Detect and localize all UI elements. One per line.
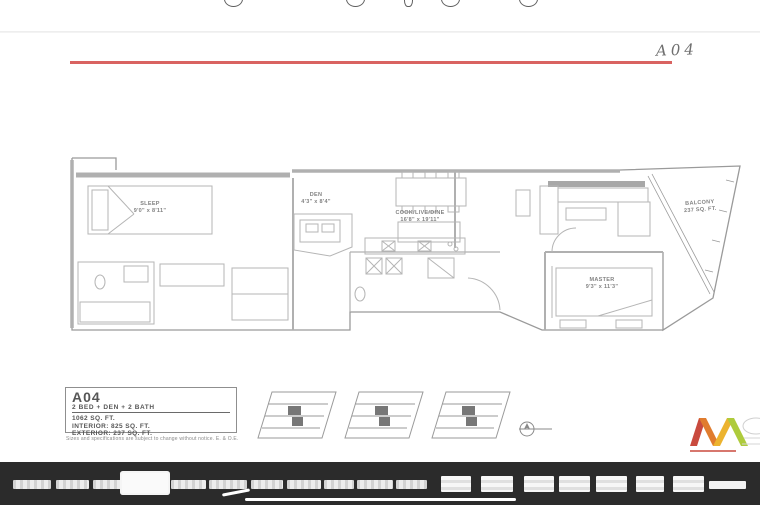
disclaimer-text: Sizes and specifications are subject to … xyxy=(66,436,296,442)
toolbar-icon[interactable] xyxy=(346,0,365,7)
builder-logo-icon xyxy=(690,418,760,452)
room-label-master: MASTER xyxy=(589,277,614,283)
thumbnail[interactable] xyxy=(524,476,554,492)
thumbnail[interactable] xyxy=(122,473,168,493)
info-box: A04 2 BED + DEN + 2 BATH 1062 SQ. FT. IN… xyxy=(65,387,237,433)
compass-icon xyxy=(519,422,552,436)
room-dims-den: 4'3" x 8'4" xyxy=(301,199,331,205)
keyplan xyxy=(258,392,336,438)
thumbnail[interactable] xyxy=(287,480,321,489)
toolbar-icon[interactable] xyxy=(404,0,413,7)
unit-interior: INTERIOR: 825 SQ. FT. xyxy=(72,423,230,431)
unit-area: 1062 SQ. FT. xyxy=(72,415,230,423)
thumbnail[interactable] xyxy=(559,476,590,492)
toolbar-icon[interactable] xyxy=(224,0,243,7)
unit-type: 2 BED + DEN + 2 BATH xyxy=(72,404,230,413)
thumbnail[interactable] xyxy=(596,476,627,492)
thumbnail[interactable] xyxy=(13,480,51,489)
thumbnail-scrollbar[interactable] xyxy=(245,498,516,501)
thumbnail[interactable] xyxy=(709,481,746,489)
thumbnail[interactable] xyxy=(93,480,121,489)
room-dims-master: 9'3" x 11'3" xyxy=(586,284,619,290)
thumbnail[interactable] xyxy=(56,480,89,489)
room-dims-sleep: 9'0" x 8'11" xyxy=(134,208,167,214)
toolbar-icon[interactable] xyxy=(519,0,538,7)
room-dims-balcony: 237 SQ. FT. xyxy=(684,206,717,214)
keyplan xyxy=(432,392,510,438)
thumbnail[interactable] xyxy=(324,480,354,489)
room-label-cook: COOK/LIVE/DINE xyxy=(395,210,444,216)
cursor-mark xyxy=(222,488,250,496)
thumbnail[interactable] xyxy=(441,476,471,492)
unit-code: A04 xyxy=(72,390,230,404)
thumbnail[interactable] xyxy=(481,476,513,492)
photo-viewer[interactable]: A04 xyxy=(0,33,760,462)
room-label-den: DEN xyxy=(310,192,323,198)
thumbnail[interactable] xyxy=(357,480,393,489)
thumbnail[interactable] xyxy=(673,476,704,492)
thumbnail[interactable] xyxy=(251,480,283,489)
thumbnail[interactable] xyxy=(636,476,664,492)
thumbnail[interactable] xyxy=(396,480,427,489)
toolbar-icon[interactable] xyxy=(441,0,460,7)
thumbnail-strip xyxy=(0,462,760,505)
gallery-page: A04 xyxy=(0,0,760,505)
toolbar xyxy=(0,0,760,10)
room-label-sleep: SLEEP xyxy=(140,201,160,207)
room-dims-cook: 16'8" x 19'11" xyxy=(400,217,439,223)
thumbnail[interactable] xyxy=(209,480,247,489)
keyplan xyxy=(345,392,423,438)
thumbnail[interactable] xyxy=(171,480,206,489)
